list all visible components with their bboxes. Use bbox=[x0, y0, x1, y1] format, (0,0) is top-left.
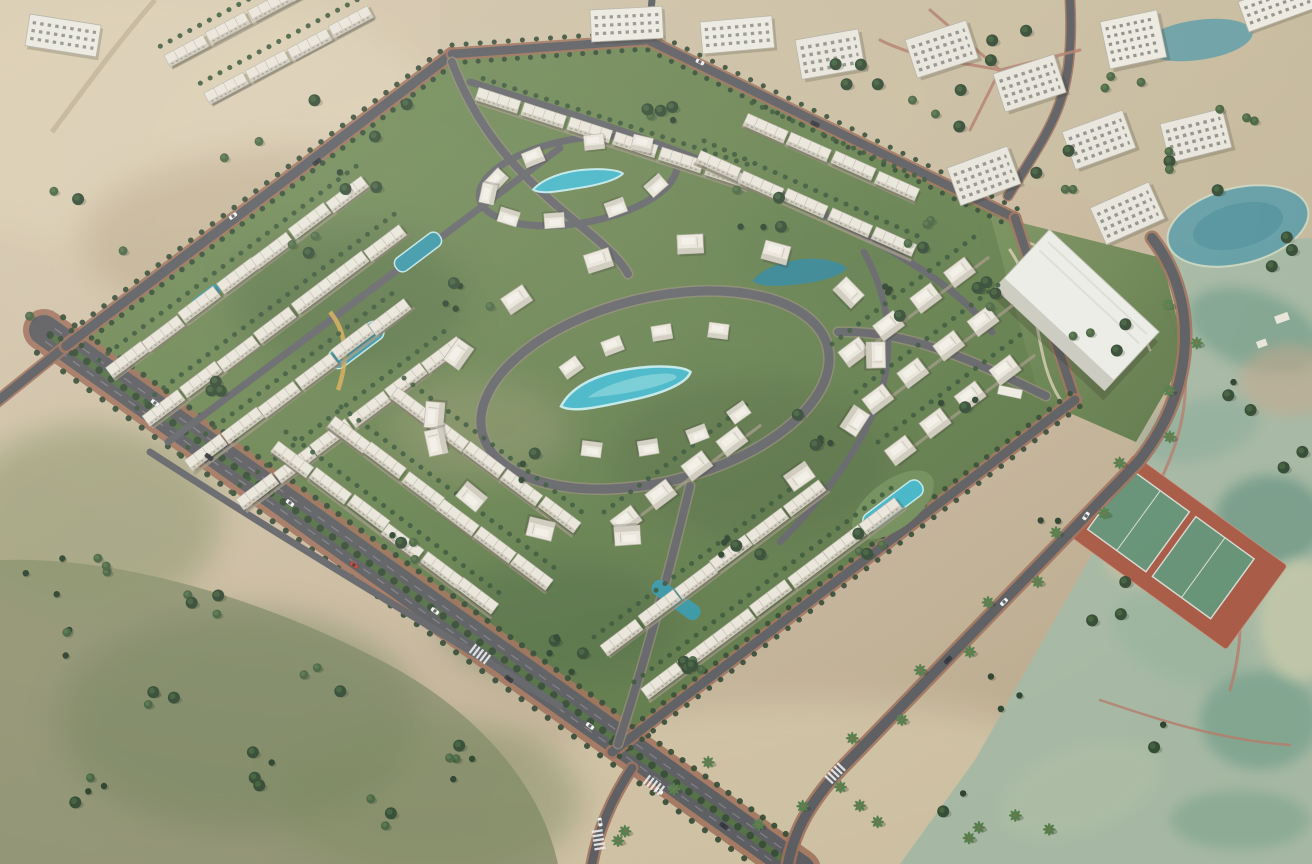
scene-canvas bbox=[0, 0, 1312, 864]
warm-tint bbox=[0, 0, 1312, 864]
aerial-render bbox=[0, 0, 1312, 864]
